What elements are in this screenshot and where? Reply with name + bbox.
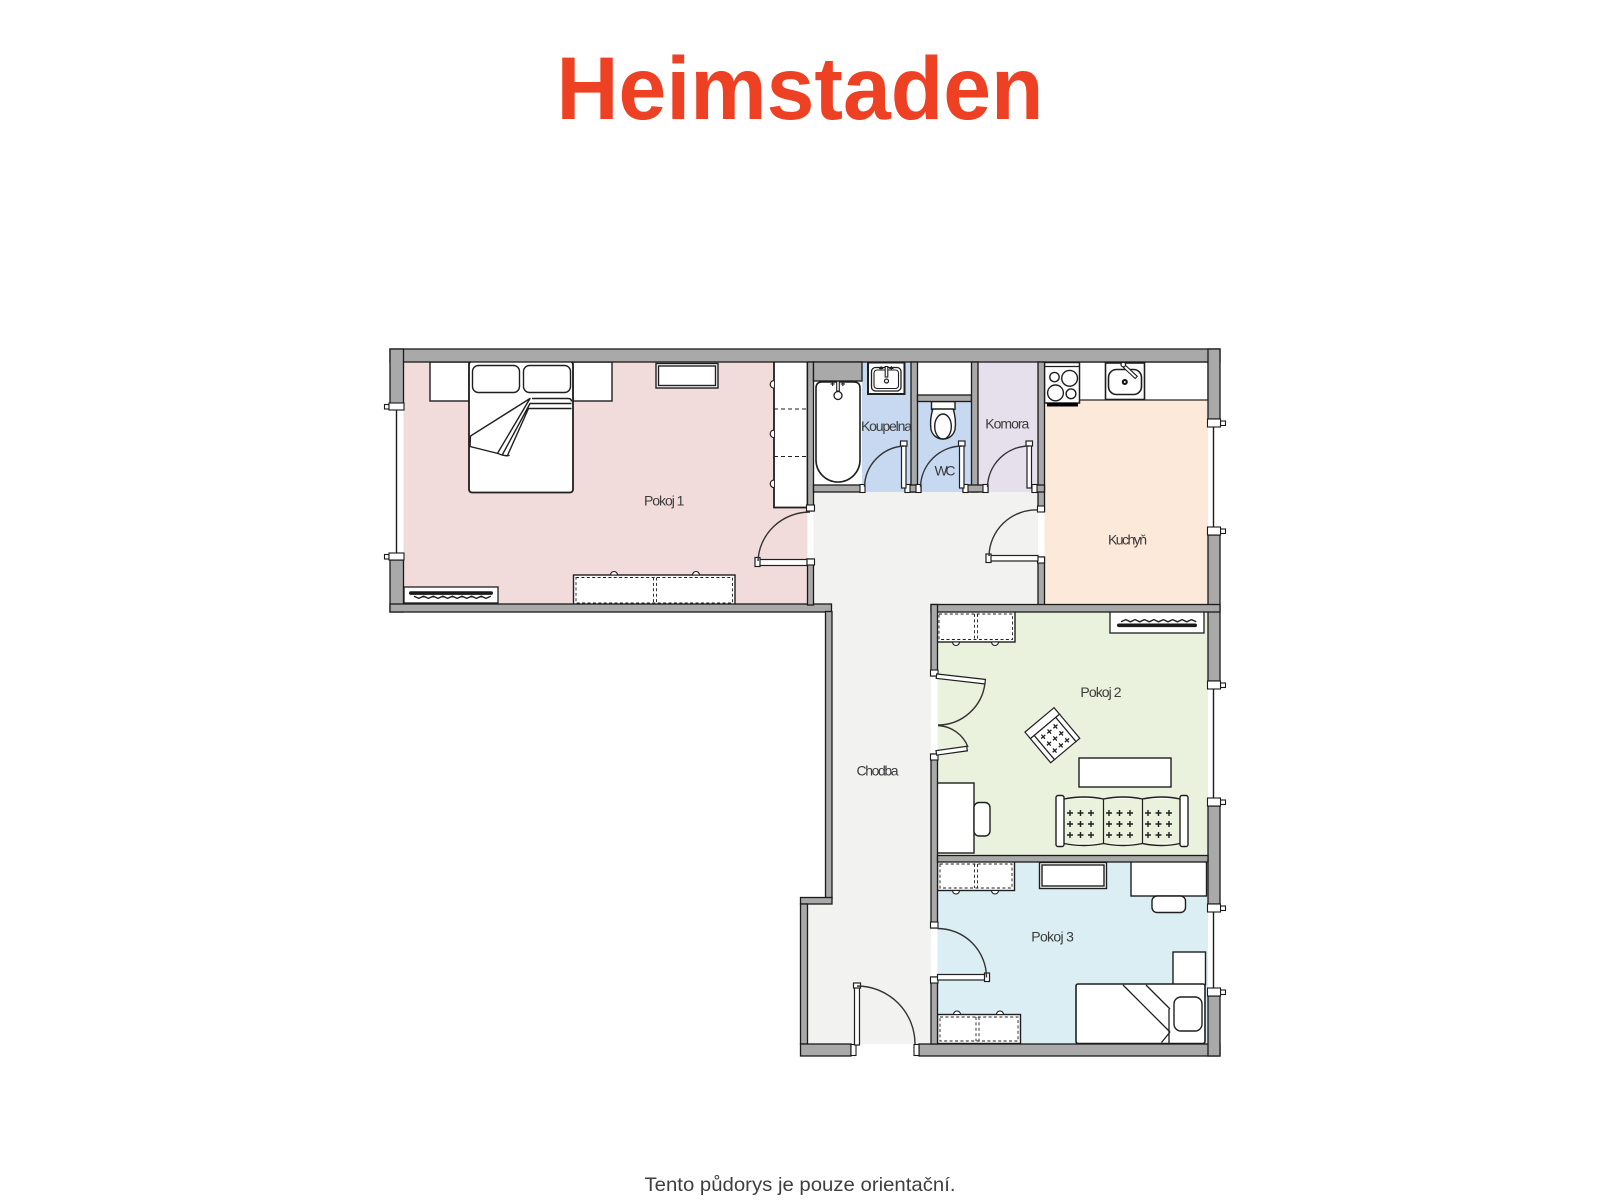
svg-text:WC: WC	[935, 463, 956, 479]
svg-text:Pokoj 3: Pokoj 3	[1031, 929, 1074, 945]
svg-text:Koupelna: Koupelna	[861, 418, 912, 434]
svg-text:Heimstaden: Heimstaden	[557, 38, 1044, 138]
svg-text:Pokoj 2: Pokoj 2	[1080, 684, 1121, 700]
svg-text:Komora: Komora	[985, 416, 1029, 432]
svg-text:Kuchyň: Kuchyň	[1108, 532, 1147, 548]
svg-text:Chodba: Chodba	[857, 763, 899, 779]
svg-text:Tento půdorys je pouze orienta: Tento půdorys je pouze orientační.	[645, 1174, 956, 1196]
svg-text:Pokoj 1: Pokoj 1	[644, 493, 685, 509]
